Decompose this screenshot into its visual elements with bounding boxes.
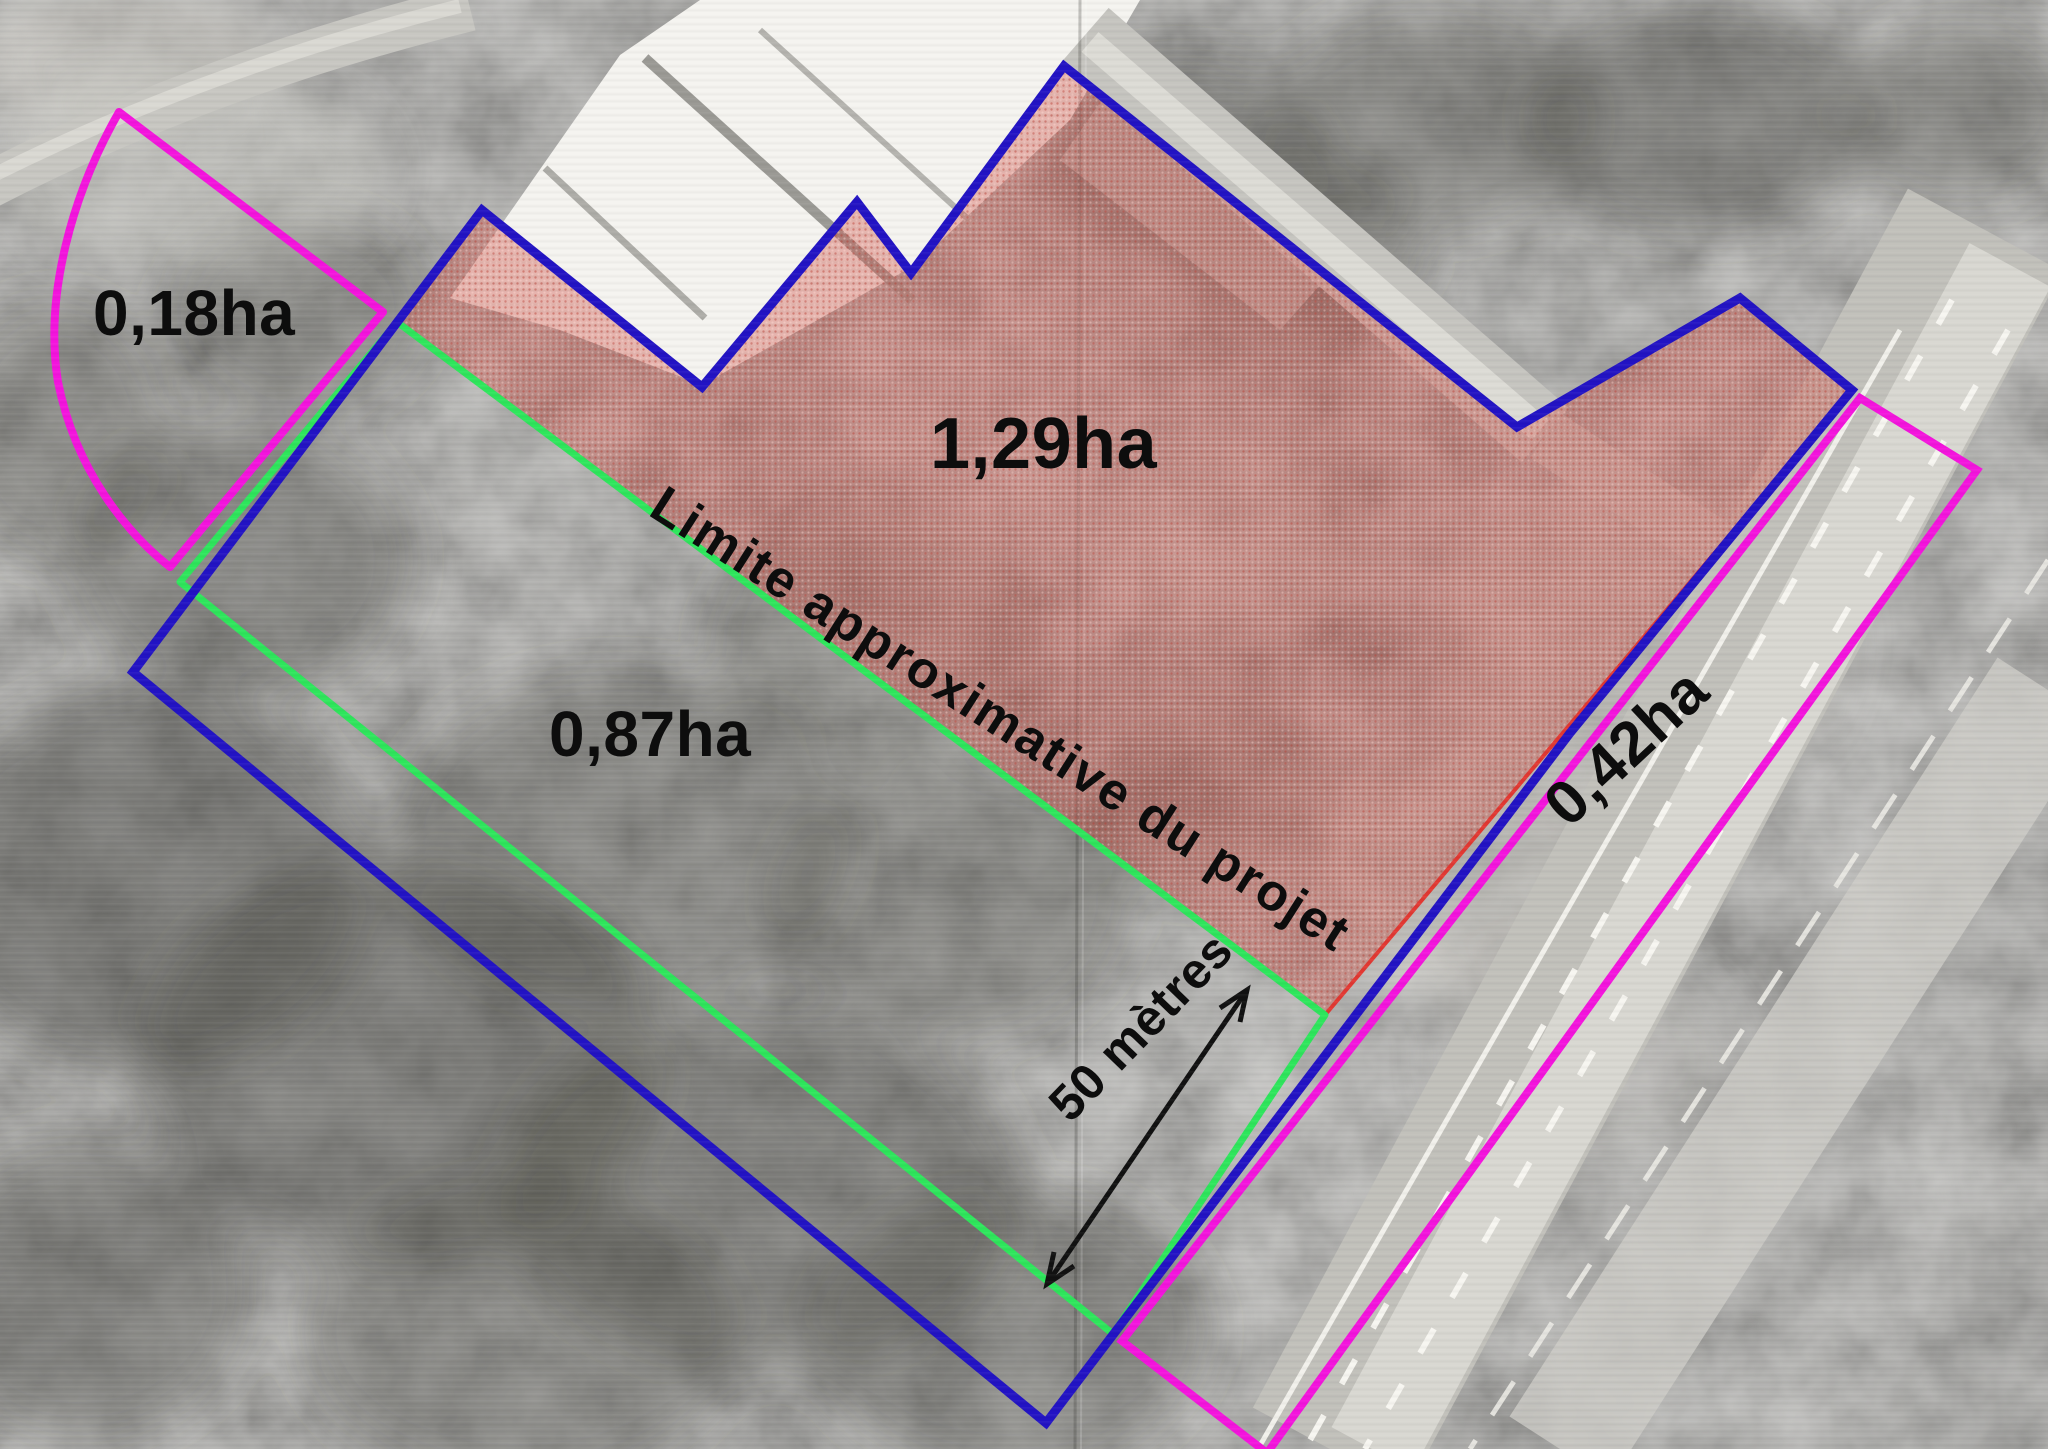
area-label-018: 0,18ha	[93, 281, 295, 345]
area-label-087: 0,87ha	[549, 702, 751, 766]
area-label-129: 1,29ha	[930, 408, 1157, 480]
aerial-annotation-map: 0,18ha 1,29ha 0,87ha 0,42ha Limite appro…	[0, 0, 2048, 1449]
